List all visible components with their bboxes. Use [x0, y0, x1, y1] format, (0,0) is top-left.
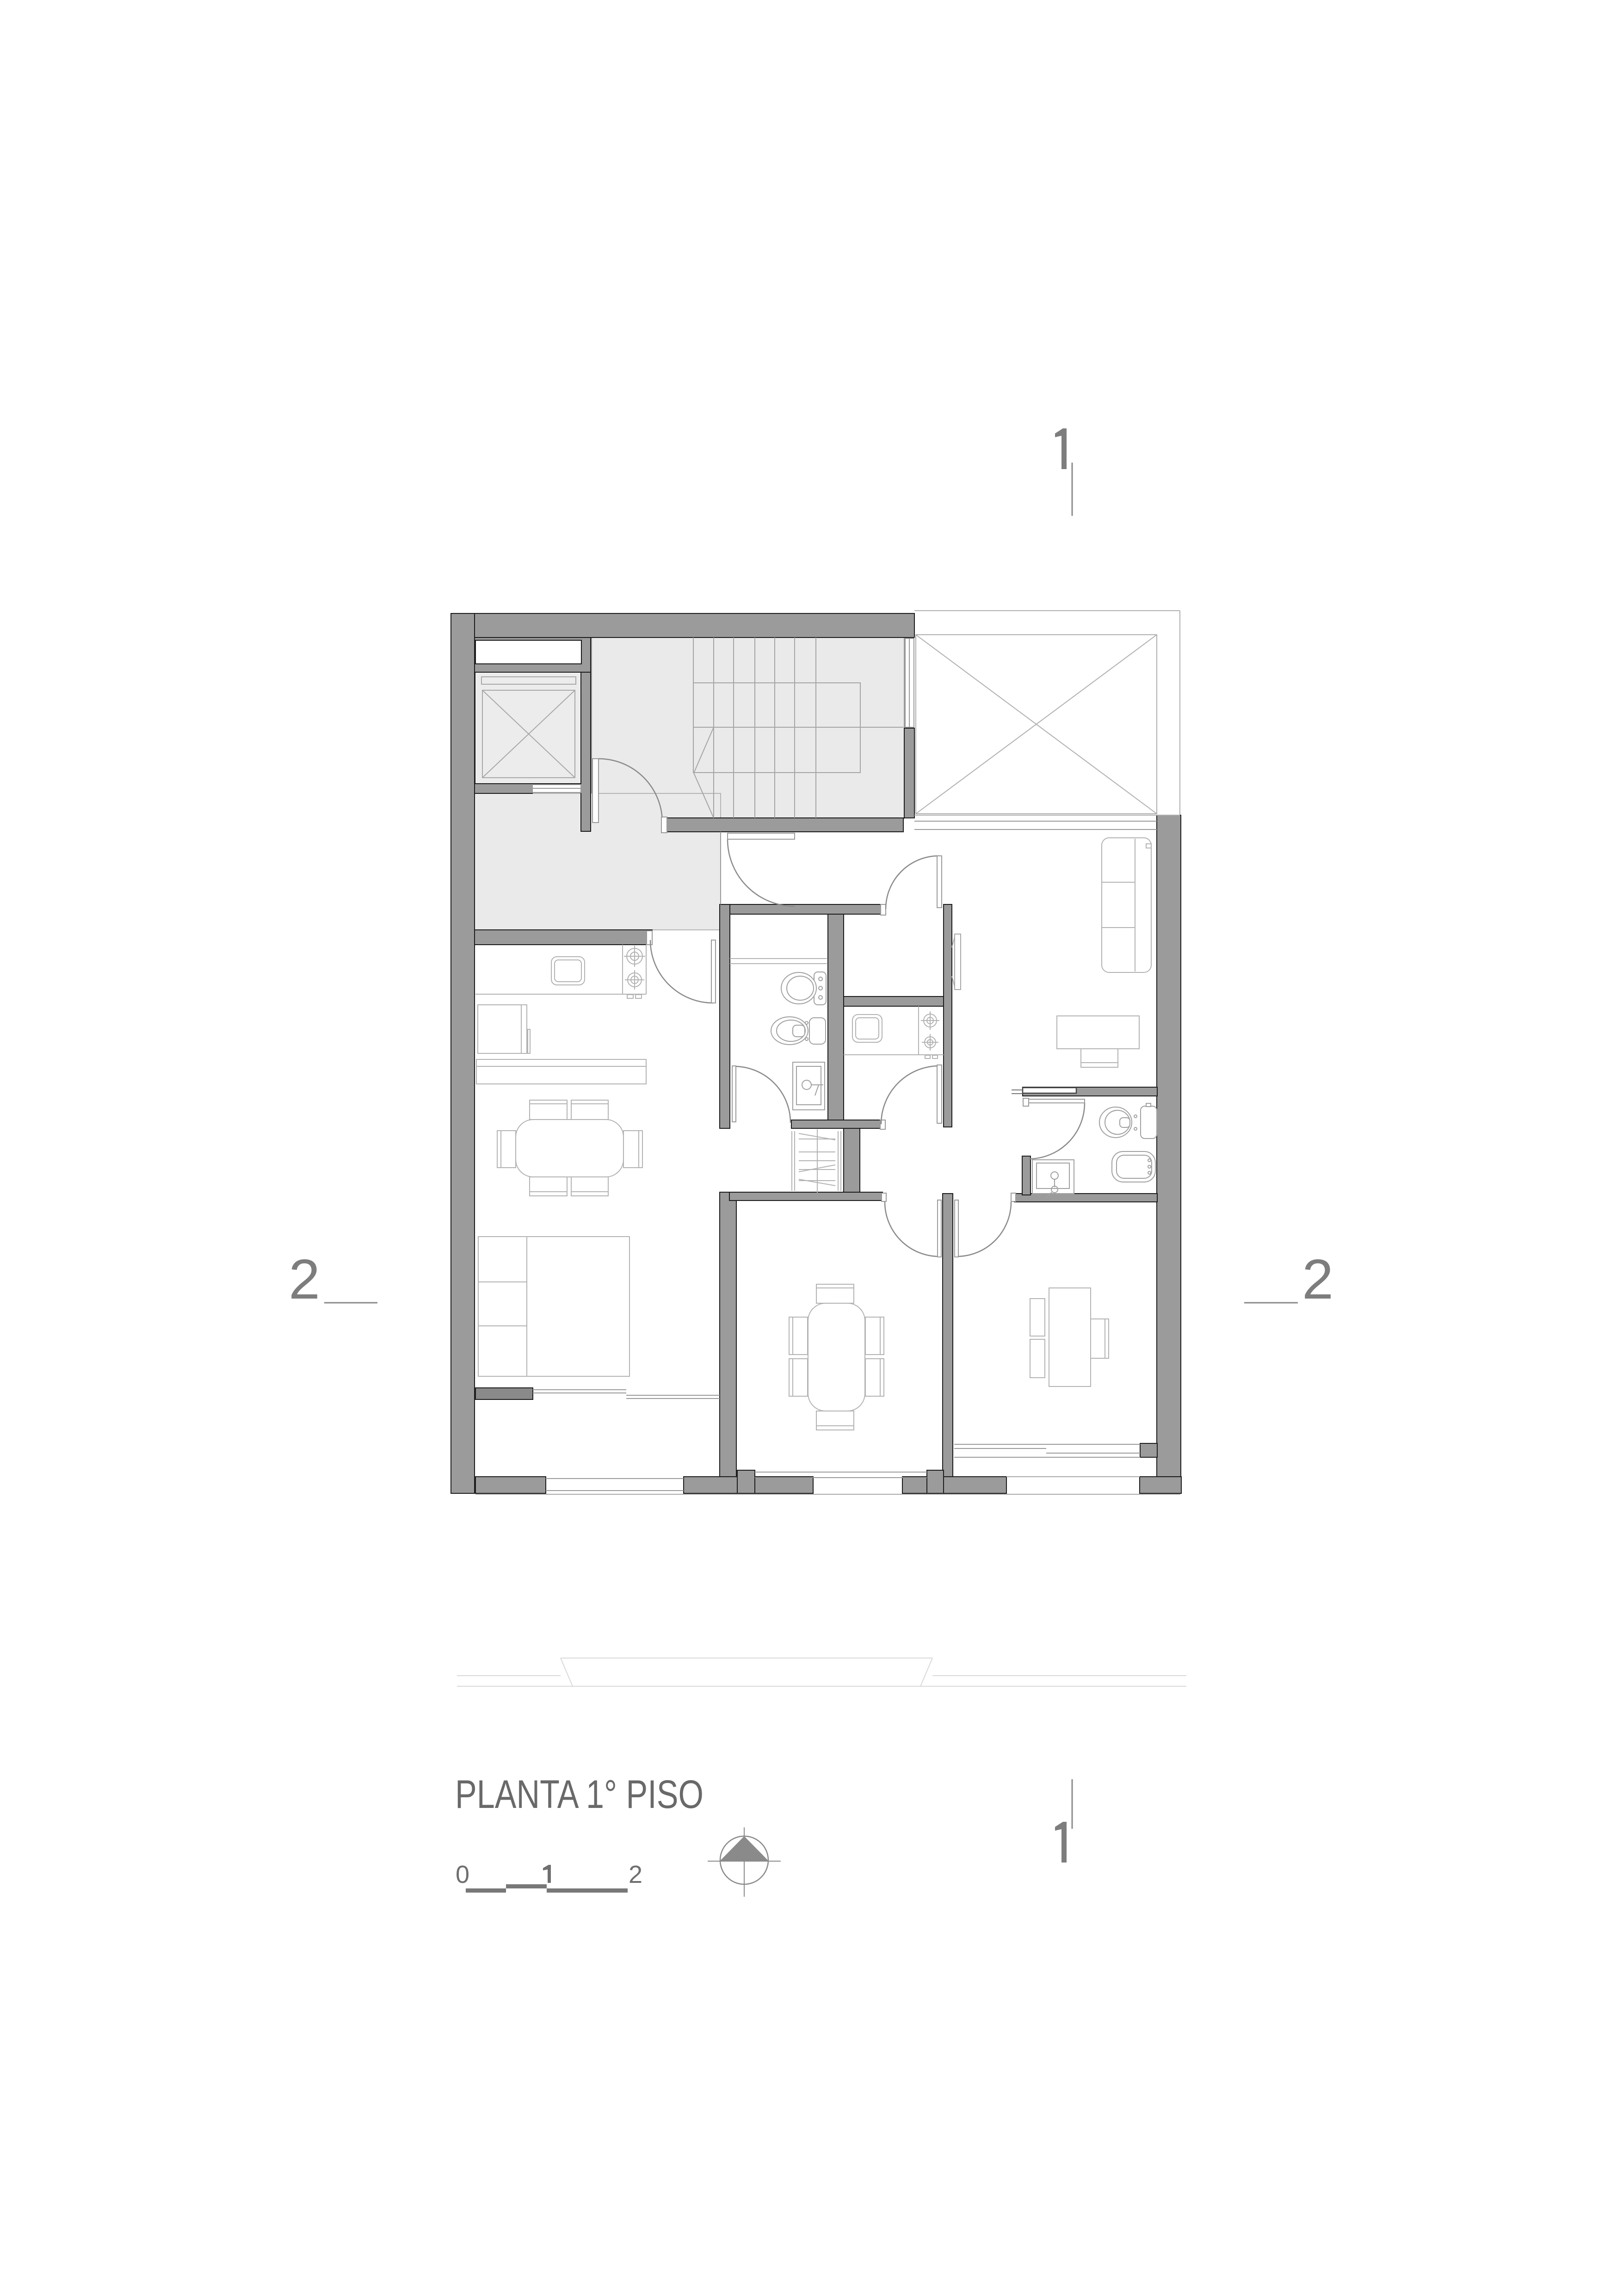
svg-text:2: 2 [629, 1861, 642, 1888]
svg-text:PLANTA 1° PISO: PLANTA 1° PISO [455, 1772, 704, 1817]
svg-text:0: 0 [456, 1861, 469, 1888]
svg-text:2: 2 [289, 1248, 320, 1311]
svg-text:2: 2 [1302, 1248, 1333, 1311]
